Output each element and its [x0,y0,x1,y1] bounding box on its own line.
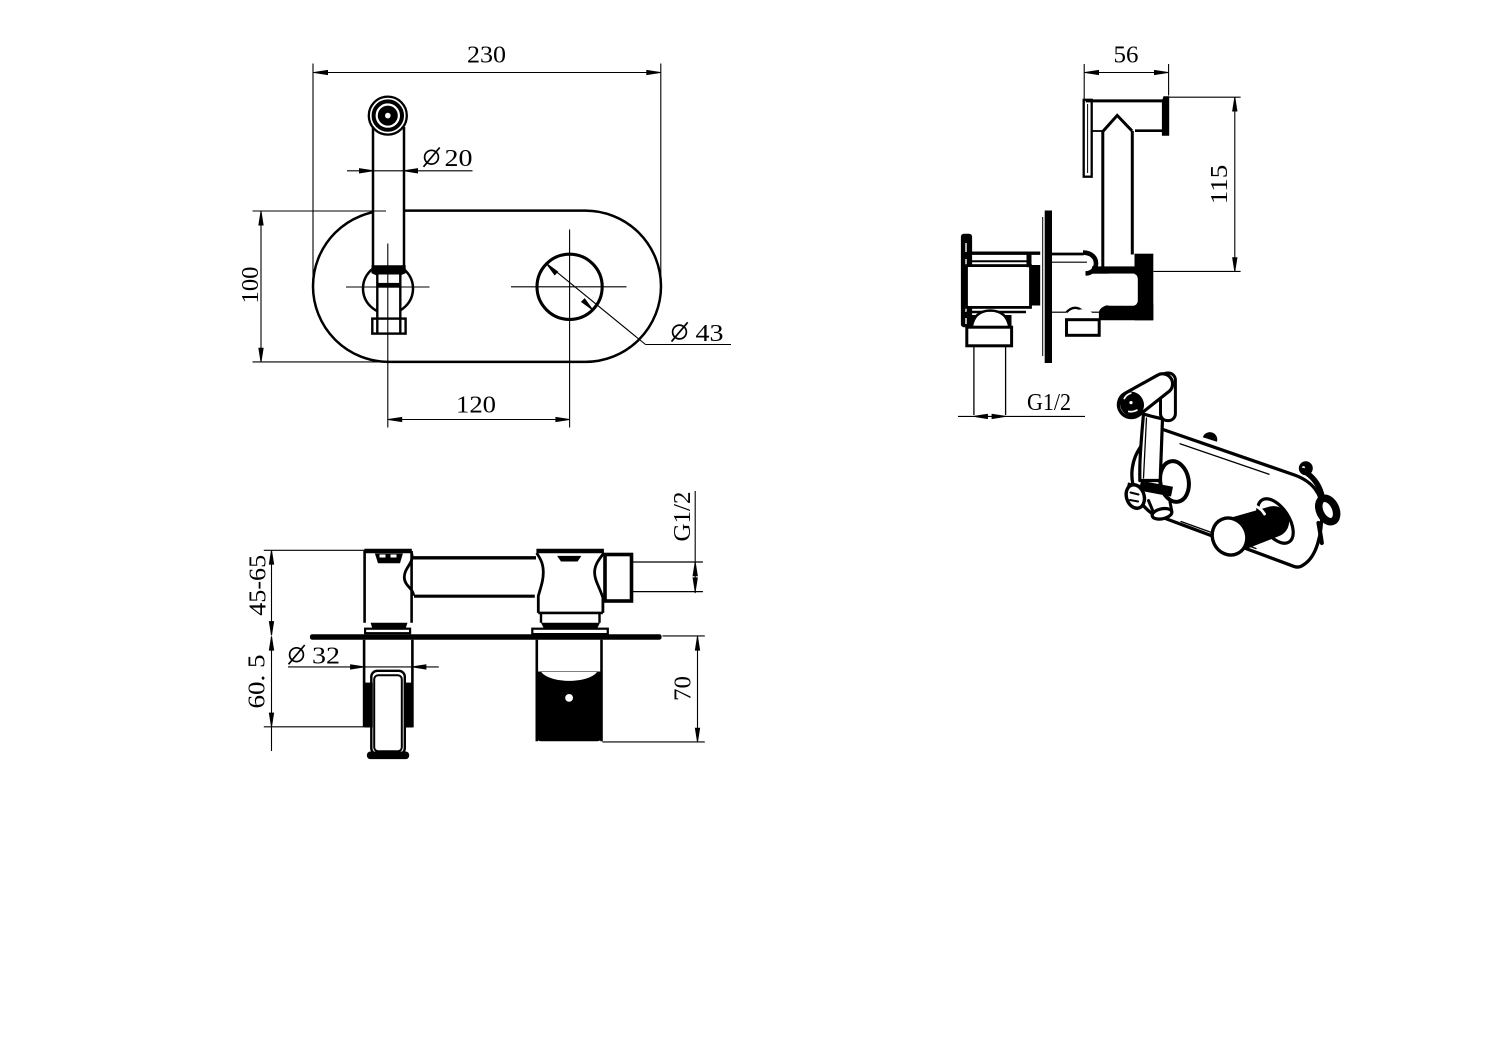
svg-text:230: 230 [467,43,506,69]
svg-text:20: 20 [445,146,473,172]
svg-text:115: 115 [1207,165,1233,205]
svg-text:G1/2: G1/2 [1027,390,1071,416]
svg-text:120: 120 [456,393,496,419]
svg-text:32: 32 [312,644,340,670]
svg-text:56: 56 [1114,43,1139,69]
svg-text:45-65: 45-65 [245,555,271,616]
svg-text:G1/2: G1/2 [670,492,696,542]
svg-text:100: 100 [238,267,264,304]
svg-text:70: 70 [671,676,697,701]
svg-text:60. 5: 60. 5 [245,655,271,709]
svg-text:43: 43 [696,321,724,347]
